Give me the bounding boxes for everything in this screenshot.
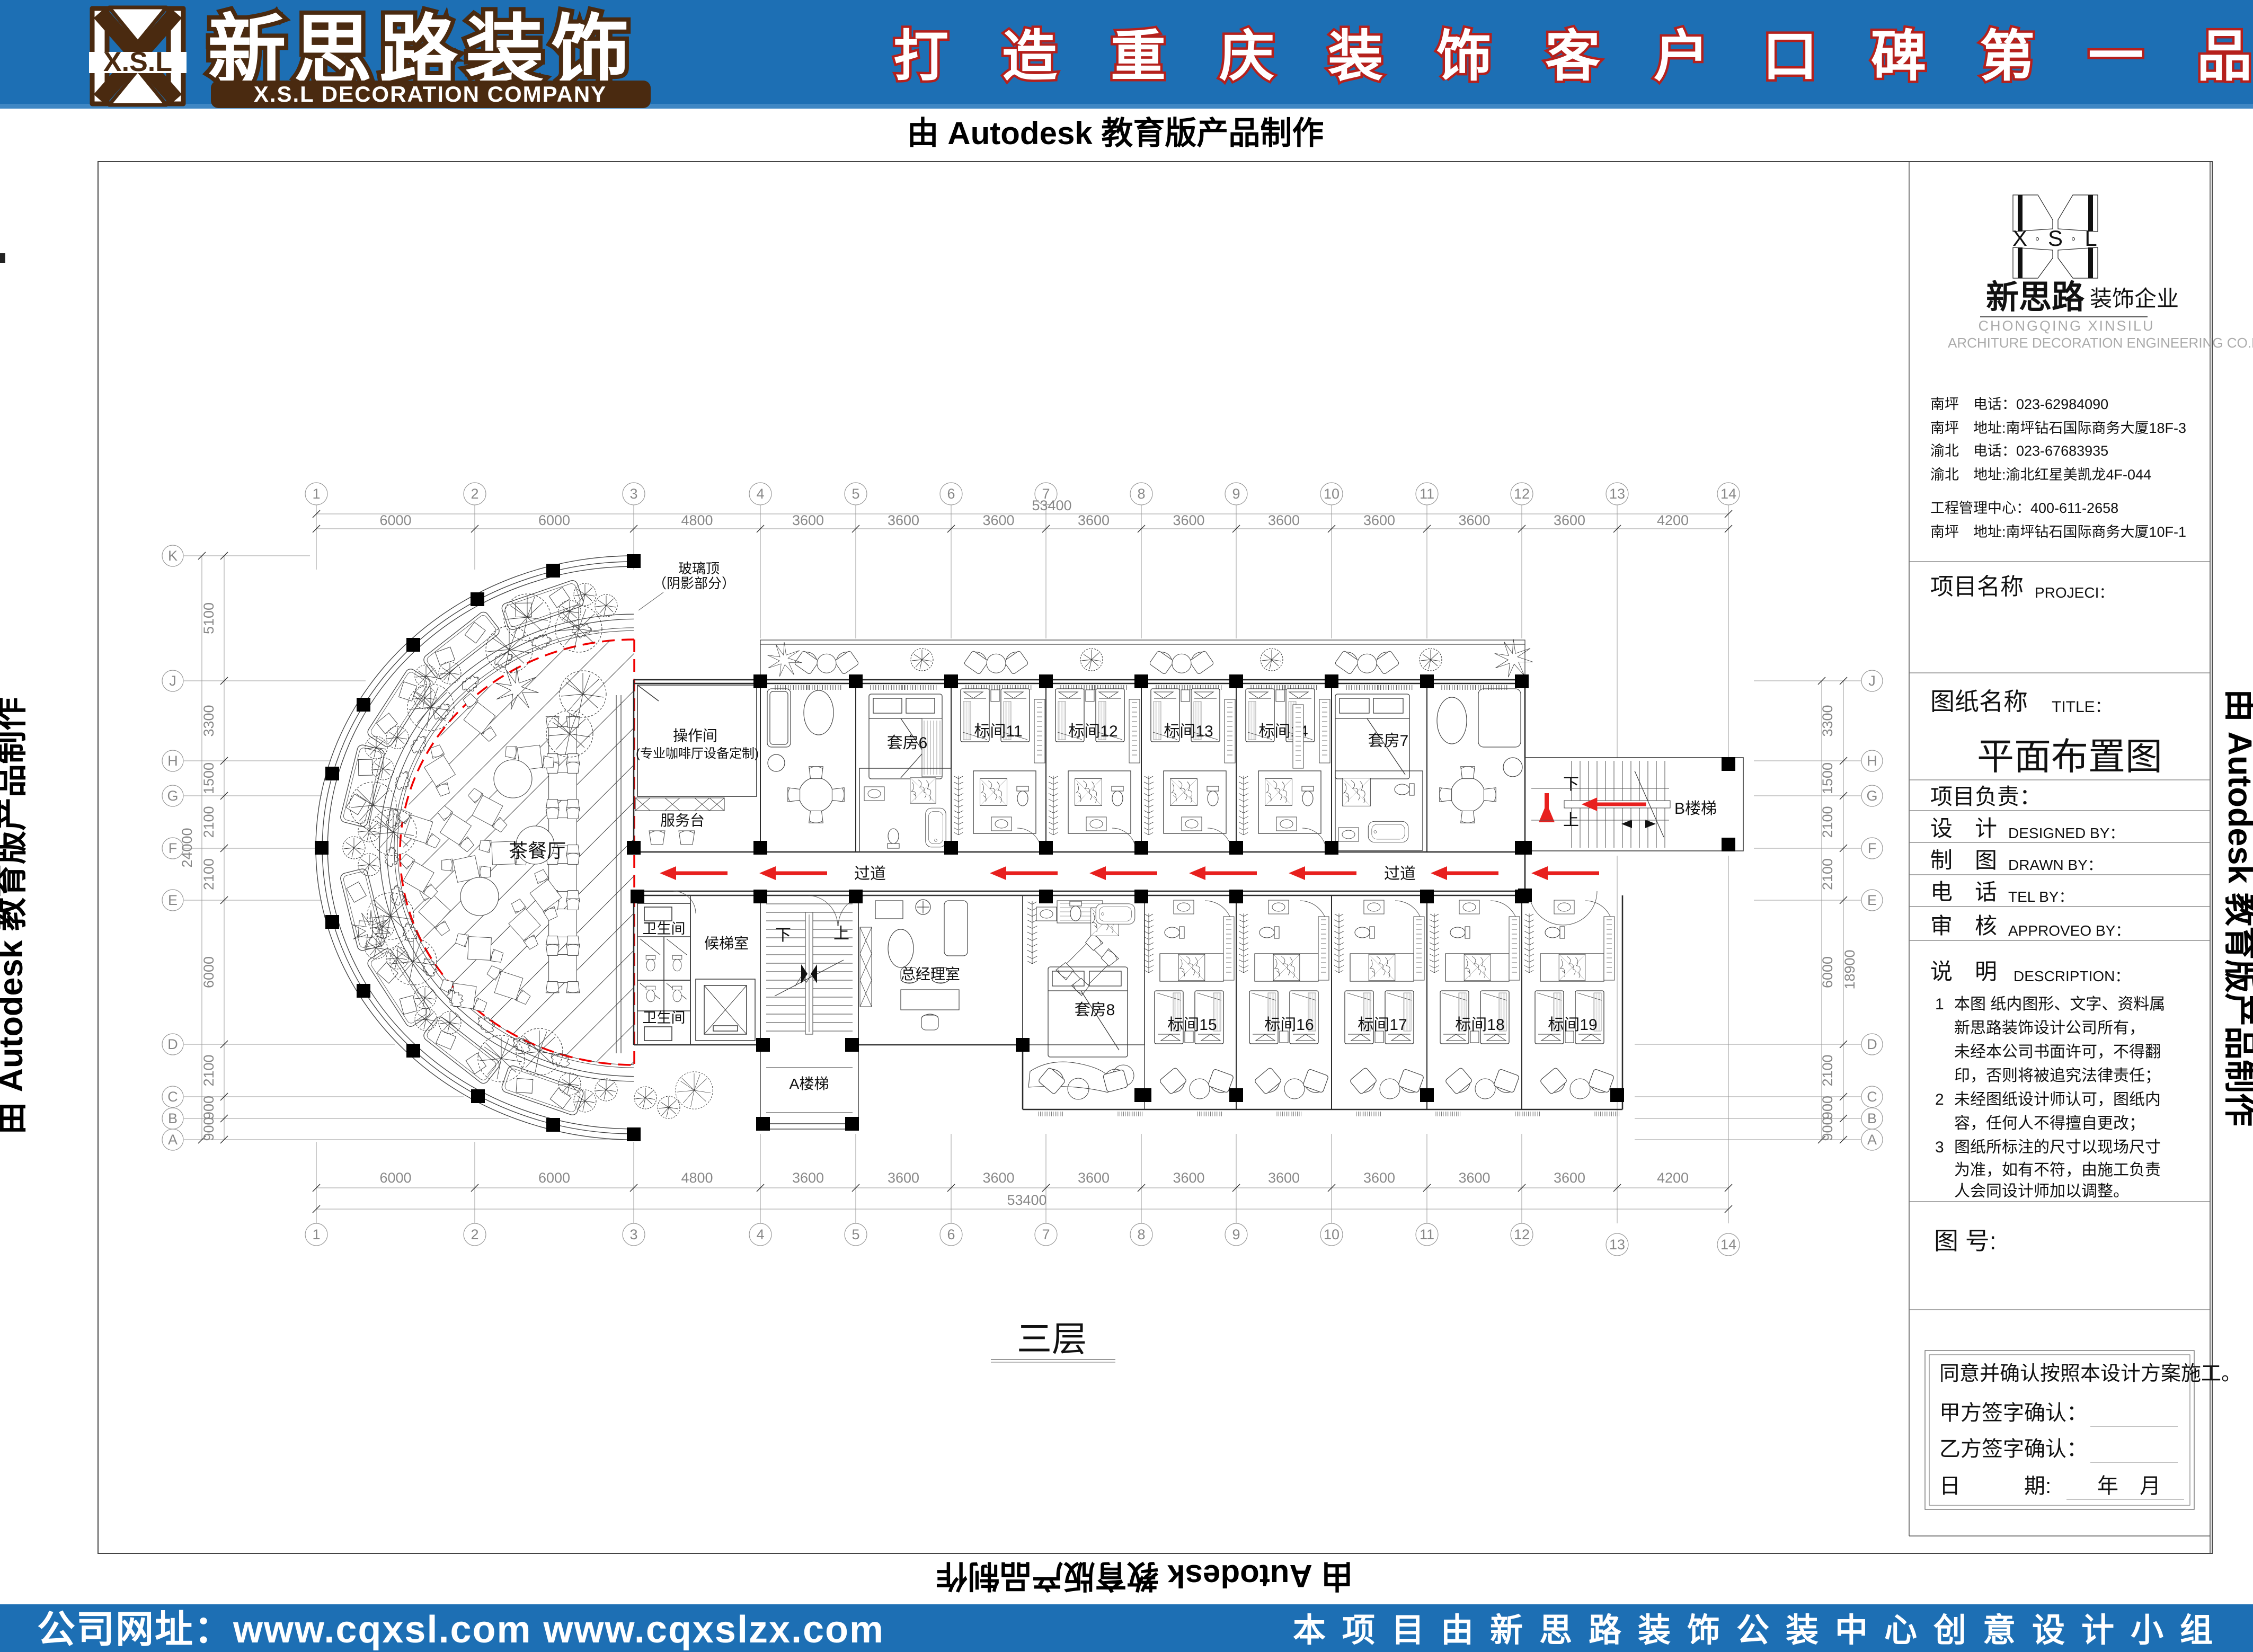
- svg-text:操作间: 操作间: [673, 727, 717, 744]
- svg-text:造: 造: [1002, 26, 1057, 87]
- svg-text:2: 2: [1935, 1091, 1944, 1108]
- svg-text:由 Autodesk 教育版产品制作: 由 Autodesk 教育版产品制作: [0, 697, 30, 1135]
- svg-text:11: 11: [1420, 1227, 1434, 1242]
- svg-text:(专业咖啡厅设备定制): (专业咖啡厅设备定制): [636, 747, 759, 761]
- svg-text:下: 下: [1563, 776, 1579, 793]
- svg-text:标间17: 标间17: [1358, 1016, 1407, 1034]
- svg-text:14: 14: [1720, 1237, 1736, 1253]
- svg-text:3600: 3600: [1363, 1170, 1395, 1186]
- svg-text:打: 打: [893, 26, 948, 87]
- svg-text:900: 900: [1820, 1096, 1835, 1120]
- svg-text:8: 8: [1137, 486, 1145, 502]
- svg-text:3600: 3600: [888, 512, 919, 528]
- svg-text:由 Autodesk 教育版产品制作: 由 Autodesk 教育版产品制作: [2221, 689, 2253, 1126]
- svg-text:6000: 6000: [1820, 956, 1835, 988]
- svg-text:茶餐厅: 茶餐厅: [509, 840, 566, 861]
- svg-text:E: E: [168, 892, 178, 908]
- svg-text:3600: 3600: [1173, 512, 1204, 528]
- svg-text:5: 5: [851, 1227, 859, 1242]
- svg-text:3600: 3600: [1268, 1170, 1300, 1186]
- svg-text:新思路: 新思路: [1986, 279, 2085, 316]
- svg-text:碑: 碑: [1871, 26, 1926, 87]
- svg-text:重: 重: [1111, 26, 1166, 87]
- svg-text:6000: 6000: [201, 956, 217, 988]
- svg-text:上: 上: [833, 925, 849, 943]
- svg-text:L: L: [2085, 226, 2097, 251]
- svg-text:12: 12: [1514, 1227, 1530, 1242]
- svg-text:13: 13: [1609, 486, 1625, 502]
- svg-text:新思路装饰设计公司所有，: 新思路装饰设计公司所有，: [1954, 1019, 2145, 1037]
- svg-text:900: 900: [1820, 1117, 1835, 1141]
- svg-text:2100: 2100: [201, 1054, 217, 1086]
- svg-text:4: 4: [756, 1227, 764, 1242]
- svg-text:标间16: 标间16: [1264, 1016, 1314, 1034]
- svg-text:服务台: 服务台: [660, 812, 705, 829]
- svg-text:南坪 地址:南坪钻石国际商务大厦18F-3: 南坪 地址:南坪钻石国际商务大厦18F-3: [1930, 420, 2186, 436]
- svg-text:日 期:: 日 期:: [1939, 1475, 2051, 1498]
- svg-text:说 明: 说 明: [1930, 959, 1997, 984]
- svg-text:图纸所标注的尺寸以现场尺寸: 图纸所标注的尺寸以现场尺寸: [1954, 1139, 2161, 1156]
- svg-text:9: 9: [1232, 486, 1240, 502]
- svg-text:4800: 4800: [681, 1170, 713, 1186]
- svg-text:项目负责：: 项目负责：: [1930, 784, 2042, 809]
- svg-text:未经图纸设计师认可，图纸内: 未经图纸设计师认可，图纸内: [1954, 1091, 2161, 1108]
- svg-text:DRAWN BY：: DRAWN BY：: [2008, 857, 2103, 873]
- svg-text:下: 下: [775, 927, 791, 944]
- svg-text:标间18: 标间18: [1455, 1016, 1504, 1034]
- svg-text:套房8: 套房8: [1075, 1001, 1115, 1019]
- svg-text:ARCHITURE DECORATION ENGINEE: ARCHITURE DECORATION ENGINEERING CO.LTD: [1948, 335, 2253, 351]
- svg-text:DESCRIPTION：: DESCRIPTION：: [2013, 968, 2130, 984]
- svg-text:10: 10: [1324, 486, 1340, 502]
- svg-text:客: 客: [1545, 26, 1600, 87]
- svg-text:A: A: [168, 1132, 178, 1148]
- svg-text:D: D: [167, 1036, 178, 1052]
- svg-text:同意并确认按照本设计方案施工。: 同意并确认按照本设计方案施工。: [1939, 1363, 2241, 1385]
- svg-text:3600: 3600: [1268, 512, 1300, 528]
- svg-text:2100: 2100: [1820, 1054, 1835, 1086]
- svg-text:1500: 1500: [201, 762, 217, 794]
- svg-text:装饰企业: 装饰企业: [2090, 286, 2179, 311]
- svg-text:三层: 三层: [1017, 1319, 1087, 1358]
- svg-text:电 话: 电 话: [1930, 880, 1997, 904]
- svg-text:8: 8: [1137, 1227, 1145, 1242]
- svg-text:12: 12: [1514, 486, 1530, 502]
- svg-text:2100: 2100: [201, 858, 217, 890]
- svg-text:乙方签字确认：: 乙方签字确认：: [1939, 1437, 2088, 1461]
- svg-text:6000: 6000: [379, 1170, 411, 1186]
- svg-text:2: 2: [471, 1227, 478, 1242]
- svg-text:1: 1: [1935, 996, 1944, 1013]
- svg-text:53400: 53400: [1007, 1192, 1046, 1208]
- svg-text:B: B: [1867, 1111, 1877, 1126]
- svg-text:A楼梯: A楼梯: [790, 1076, 829, 1092]
- svg-text:10: 10: [1324, 1227, 1340, 1242]
- svg-text:公司网址：www.cqxsl.com www.cqxslz: 公司网址：www.cqxsl.com www.cqxslzx.com: [37, 1609, 884, 1651]
- svg-text:6000: 6000: [379, 512, 411, 528]
- svg-text:卫生间: 卫生间: [643, 1010, 686, 1026]
- svg-text:X.S.L DECORATION COMPANY: X.S.L DECORATION COMPANY: [254, 82, 607, 106]
- svg-text:G: G: [167, 788, 178, 804]
- svg-text:H: H: [167, 753, 178, 769]
- svg-text:南坪 电话：023-62984090: 南坪 电话：023-62984090: [1930, 396, 2108, 412]
- svg-text:设 计: 设 计: [1930, 816, 1997, 841]
- svg-text:5: 5: [851, 486, 859, 502]
- svg-text:3600: 3600: [1078, 512, 1110, 528]
- svg-text:项目名称: 项目名称: [1930, 574, 2024, 600]
- svg-text:饰: 饰: [1436, 26, 1492, 87]
- svg-text:人会同设计师加以调整。: 人会同设计师加以调整。: [1954, 1183, 2129, 1200]
- svg-text:工程管理中心：400-611-2658: 工程管理中心：400-611-2658: [1930, 500, 2118, 516]
- svg-text:玻璃顶: 玻璃顶: [678, 561, 720, 576]
- svg-text:6: 6: [947, 486, 955, 502]
- svg-text:平面布置图: 平面布置图: [1977, 736, 2162, 777]
- svg-text:2100: 2100: [1820, 858, 1835, 890]
- svg-text:甲方签字确认：: 甲方签字确认：: [1939, 1401, 2088, 1425]
- svg-text:F: F: [1868, 840, 1877, 856]
- svg-text:总经理室: 总经理室: [901, 966, 960, 982]
- svg-text:6000: 6000: [538, 1170, 570, 1186]
- svg-text:7: 7: [1042, 1227, 1050, 1242]
- svg-text:2100: 2100: [1820, 806, 1835, 838]
- svg-text:CHONGQING XINSILU: CHONGQING XINSILU: [1978, 318, 2154, 334]
- svg-text:3600: 3600: [888, 1170, 919, 1186]
- svg-text:标间19: 标间19: [1548, 1016, 1597, 1034]
- svg-text:K: K: [168, 548, 178, 564]
- svg-text:由 Autodesk 教育版产品制作: 由 Autodesk 教育版产品制作: [907, 116, 1324, 151]
- svg-text:6000: 6000: [538, 512, 570, 528]
- svg-text:口: 口: [1762, 26, 1817, 87]
- svg-text:卫生间: 卫生间: [643, 921, 686, 937]
- svg-text:4: 4: [756, 486, 764, 502]
- svg-text:4200: 4200: [1657, 512, 1689, 528]
- svg-text:14: 14: [1720, 486, 1736, 502]
- svg-text:未经本公司书面许可，不得翻: 未经本公司书面许可，不得翻: [1954, 1043, 2161, 1061]
- svg-text:3300: 3300: [201, 705, 217, 736]
- svg-text:本项目由新思路装饰公装中心创意设计小组: 本项目由新思路装饰公装中心创意设计小组: [1293, 1612, 2229, 1649]
- svg-text:24000: 24000: [179, 828, 195, 867]
- svg-text:为准，如有不符，由施工负责: 为准，如有不符，由施工负责: [1954, 1161, 2161, 1179]
- svg-text:3: 3: [629, 486, 637, 502]
- svg-text:标间11: 标间11: [974, 723, 1022, 740]
- svg-text:3600: 3600: [1554, 1170, 1585, 1186]
- svg-text:3600: 3600: [1554, 512, 1585, 528]
- svg-text:F: F: [168, 840, 178, 856]
- svg-text:TEL BY：: TEL BY：: [2008, 889, 2073, 905]
- svg-text:3600: 3600: [1078, 1170, 1110, 1186]
- svg-text:TITLE：: TITLE：: [2052, 698, 2111, 716]
- svg-text:3600: 3600: [792, 512, 824, 528]
- svg-text:3600: 3600: [1173, 1170, 1204, 1186]
- svg-text:由 Autodesk 教育版产品制作: 由 Autodesk 教育版产品制作: [936, 1558, 1353, 1594]
- svg-text:6: 6: [947, 1227, 955, 1242]
- svg-text:9: 9: [1232, 1227, 1240, 1242]
- svg-text:13: 13: [1609, 1237, 1625, 1253]
- svg-text:图 号:: 图 号:: [1934, 1227, 1997, 1255]
- svg-text:B楼梯: B楼梯: [1674, 800, 1717, 818]
- svg-text:年 月: 年 月: [2097, 1475, 2161, 1498]
- svg-text:2: 2: [471, 486, 478, 502]
- svg-text:A: A: [1867, 1132, 1877, 1148]
- svg-text:11: 11: [1420, 486, 1434, 502]
- svg-text:南坪 地址:南坪钻石国际商务大厦10F-1: 南坪 地址:南坪钻石国际商务大厦10F-1: [1930, 524, 2186, 540]
- svg-text:4800: 4800: [681, 512, 713, 528]
- svg-text:容，任何人不得擅自更改；: 容，任何人不得擅自更改；: [1954, 1115, 2145, 1132]
- svg-text:套房7: 套房7: [1368, 732, 1409, 750]
- svg-text:X: X: [2012, 226, 2027, 251]
- svg-text:2100: 2100: [201, 806, 217, 838]
- svg-text:3600: 3600: [982, 512, 1014, 528]
- svg-text:标间15: 标间15: [1167, 1016, 1217, 1034]
- svg-text:标间12: 标间12: [1068, 723, 1117, 740]
- svg-text:4200: 4200: [1657, 1170, 1689, 1186]
- svg-text:3300: 3300: [1820, 705, 1835, 736]
- svg-text:3600: 3600: [1363, 512, 1395, 528]
- svg-text:（阴影部分）: （阴影部分）: [653, 575, 735, 591]
- svg-text:53400: 53400: [1032, 498, 1071, 513]
- svg-text:900: 900: [201, 1096, 217, 1120]
- svg-text:上: 上: [1563, 812, 1579, 829]
- svg-text:渝北 电话：023-67683935: 渝北 电话：023-67683935: [1930, 443, 2108, 459]
- svg-text:E: E: [1867, 892, 1877, 908]
- svg-text:印，否则将被追究法律责任；: 印，否则将被追究法律责任；: [1954, 1067, 2161, 1085]
- svg-text:套房6: 套房6: [887, 734, 928, 752]
- svg-text:S: S: [2048, 226, 2063, 251]
- svg-text:标间13: 标间13: [1164, 723, 1213, 740]
- svg-text:J: J: [1868, 673, 1876, 689]
- svg-text:本图 纸内图形、文字、资料属: 本图 纸内图形、文字、资料属: [1954, 996, 2165, 1013]
- svg-text:3600: 3600: [792, 1170, 824, 1186]
- svg-text:制 图: 制 图: [1930, 848, 1997, 873]
- svg-text:18900: 18900: [1842, 949, 1858, 989]
- svg-text:D: D: [1867, 1036, 1877, 1052]
- svg-text:3: 3: [629, 1227, 637, 1242]
- svg-text:1: 1: [312, 1227, 320, 1242]
- svg-text:1500: 1500: [1820, 762, 1835, 794]
- svg-text:1: 1: [312, 486, 320, 502]
- svg-text:B: B: [168, 1111, 178, 1126]
- svg-text:候梯室: 候梯室: [704, 935, 749, 952]
- svg-text:J: J: [169, 673, 176, 689]
- svg-text:一: 一: [2088, 26, 2143, 87]
- svg-text:图纸名称: 图纸名称: [1930, 688, 2028, 715]
- svg-text:H: H: [1867, 753, 1877, 769]
- svg-text:APPROVEO BY：: APPROVEO BY：: [2008, 922, 2130, 939]
- svg-text:3600: 3600: [1458, 512, 1490, 528]
- svg-text:900: 900: [201, 1117, 217, 1141]
- svg-text:3600: 3600: [1458, 1170, 1490, 1186]
- svg-text:DESIGNED BY：: DESIGNED BY：: [2008, 825, 2124, 841]
- svg-text:第: 第: [1980, 26, 2035, 87]
- svg-text:渝北 地址:渝北红星美凯龙4F-044: 渝北 地址:渝北红星美凯龙4F-044: [1930, 467, 2151, 483]
- svg-text:3600: 3600: [982, 1170, 1014, 1186]
- svg-text:5100: 5100: [201, 602, 217, 634]
- svg-text:3: 3: [1935, 1139, 1944, 1156]
- svg-text:审 核: 审 核: [1930, 913, 1997, 938]
- svg-text:C: C: [167, 1089, 178, 1105]
- svg-text:户: 户: [1654, 26, 1709, 87]
- svg-text:过道: 过道: [854, 865, 886, 883]
- svg-text:庆: 庆: [1219, 26, 1274, 87]
- svg-text:C: C: [1867, 1089, 1877, 1105]
- svg-text:品: 品: [2197, 26, 2252, 87]
- svg-text:过道: 过道: [1384, 865, 1416, 883]
- svg-text:X.S.L: X.S.L: [103, 47, 172, 77]
- svg-text:PROJECI：: PROJECI：: [2035, 584, 2114, 601]
- svg-text:装: 装: [1328, 26, 1383, 87]
- svg-text:G: G: [1866, 788, 1877, 804]
